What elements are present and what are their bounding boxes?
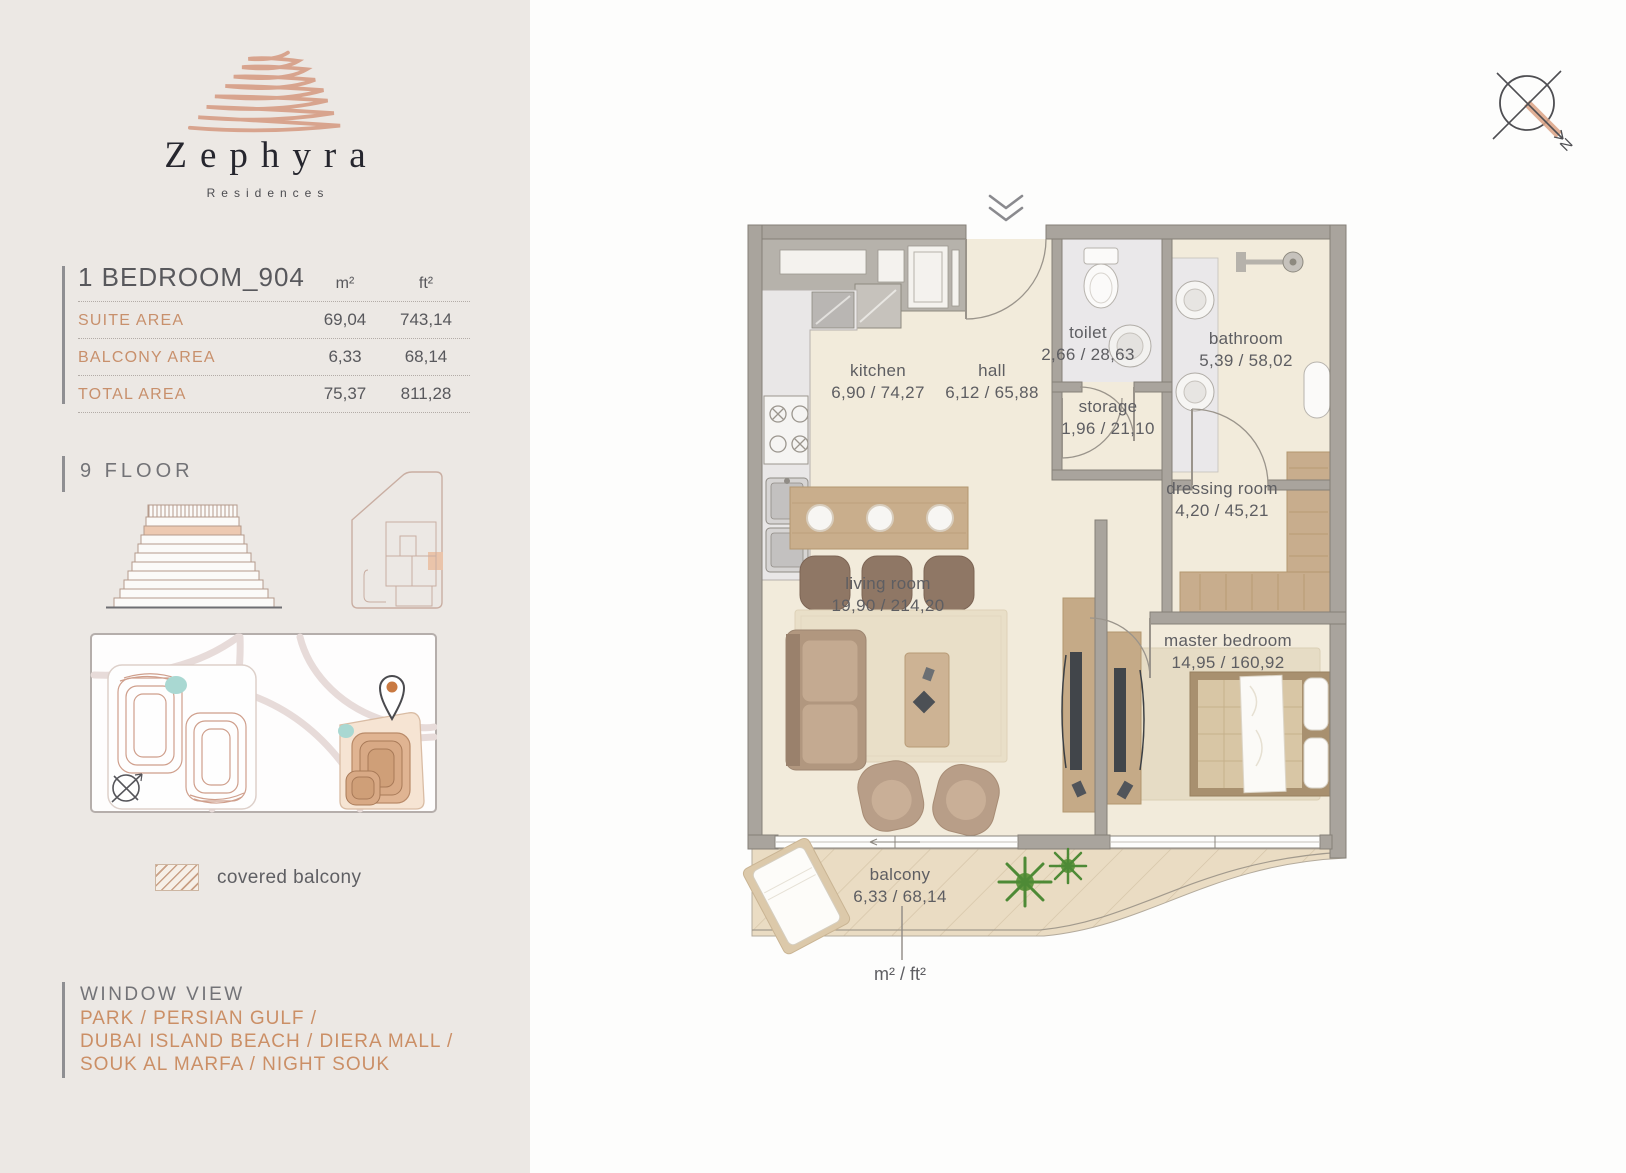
row-m2: 69,04 (308, 310, 382, 330)
row-ft2: 743,14 (382, 310, 470, 330)
area-table: 1 BEDROOM_904 m² ft² SUITE AREA 69,04 74… (78, 262, 470, 413)
row-label: SUITE AREA (78, 312, 308, 330)
row-m2: 75,37 (308, 384, 382, 404)
table-row: SUITE AREA 69,04 743,14 (78, 302, 470, 339)
brand-subtitle: Residences (0, 186, 530, 200)
room-label-balcony: balcony6,33 / 68,14 (853, 864, 946, 907)
window-view-title: WINDOW VIEW (80, 984, 245, 1006)
row-m2: 6,33 (308, 347, 382, 367)
building-elevation (100, 487, 285, 612)
units-note: m² / ft² (874, 964, 926, 985)
room-label-storage: storage1,96 / 21,10 (1061, 396, 1154, 439)
window-view-line: PARK / PERSIAN GULF / (80, 1008, 317, 1030)
brand-logo: Zephyra Residences (0, 38, 530, 200)
row-ft2: 68,14 (382, 347, 470, 367)
floor-plan-drawing (740, 180, 1440, 1060)
plant-icon (1050, 849, 1086, 883)
map-building-highlight (346, 733, 410, 805)
floor-accent-bar (62, 456, 65, 492)
north-compass-icon: N (1470, 40, 1626, 180)
col-m2-header: m² (308, 275, 382, 293)
location-map (90, 633, 437, 813)
hatch-swatch-icon (155, 864, 199, 891)
row-label: TOTAL AREA (78, 386, 308, 404)
table-accent-bar (62, 266, 65, 404)
window-view-accent-bar (62, 982, 65, 1078)
room-label-toilet: toilet2,66 / 28,63 (1041, 322, 1134, 365)
room-label-bathroom: bathroom5,39 / 58,02 (1199, 328, 1292, 371)
brand-name: Zephyra (0, 134, 530, 177)
room-label-kitchen: kitchen6,90 / 74,27 (831, 360, 924, 403)
table-header: 1 BEDROOM_904 m² ft² (78, 262, 470, 302)
row-label: BALCONY AREA (78, 349, 308, 367)
table-row: TOTAL AREA 75,37 811,28 (78, 376, 470, 413)
floor-label: 9 FLOOR (80, 460, 194, 483)
legend-covered-balcony: covered balcony (155, 864, 361, 891)
sidebar: Zephyra Residences 1 BEDROOM_904 m² ft² … (0, 0, 530, 1173)
entrance-chevron-icon (990, 196, 1022, 220)
window-view-line: DUBAI ISLAND BEACH / DIERA MALL / (80, 1031, 453, 1053)
window-view-line: SOUK AL MARFA / NIGHT SOUK (80, 1054, 390, 1076)
row-ft2: 811,28 (382, 384, 470, 404)
unit-title: 1 BEDROOM_904 (78, 262, 308, 293)
legend-label: covered balcony (217, 867, 361, 889)
room-label-hall: hall6,12 / 65,88 (945, 360, 1038, 403)
table-row: BALCONY AREA 6,33 68,14 (78, 339, 470, 376)
brochure-page: { "brand": { "name": "Zephyra", "subtitl… (0, 0, 1626, 1173)
room-label-living-room: living room19,90 / 214,20 (832, 573, 945, 616)
room-label-dressing-room: dressing room4,20 / 45,21 (1166, 478, 1278, 521)
unit-keyplan (340, 466, 450, 612)
col-ft2-header: ft² (382, 275, 470, 293)
room-label-master-bedroom: master bedroom14,95 / 160,92 (1164, 630, 1292, 673)
logo-scribble-icon (165, 38, 365, 134)
plant-icon (999, 858, 1051, 906)
